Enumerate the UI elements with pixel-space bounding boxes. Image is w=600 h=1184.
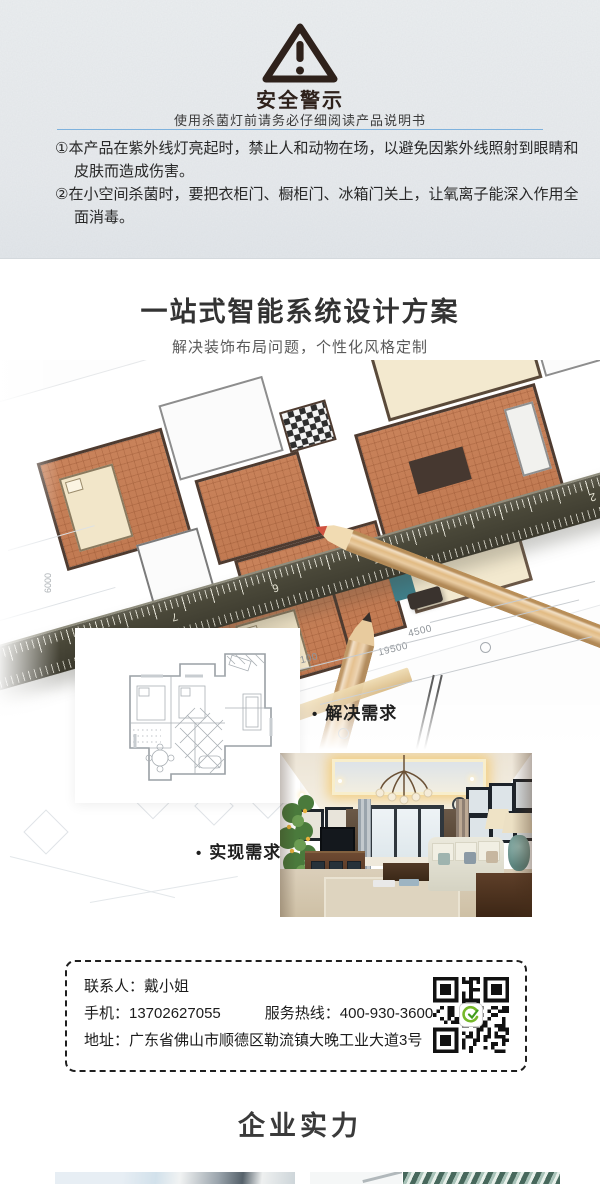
spotlight	[338, 779, 342, 783]
desk-symbol	[409, 446, 472, 494]
item-number: ①	[55, 140, 68, 157]
item-text: 在小空间杀菌时，要把衣柜门、橱柜门、冰箱门关上，让氧离子能深入作用全面消毒。	[68, 186, 578, 226]
contact-info: 联系人：戴小姐 手机：13702627055服务热线：400-930-3600 …	[84, 973, 433, 1054]
company-photo-1	[55, 1172, 295, 1184]
qr-logo-icon	[459, 1003, 483, 1027]
ottoman	[365, 884, 439, 913]
photo-detail	[362, 1172, 402, 1183]
contact-phones: 手机：13702627055服务热线：400-930-3600	[84, 1000, 433, 1027]
company-photo-2	[310, 1172, 402, 1184]
product-detail-page: 安全警示 使用杀菌灯前请务必仔细阅读产品说明书 ①本产品在紫外线灯亮起时，禁止人…	[0, 0, 600, 1184]
book	[399, 879, 419, 886]
warning-item: ①本产品在紫外线灯亮起时，禁止人和动物在场，以避免因紫外线照射到眼睛和皮肤而造成…	[55, 137, 585, 183]
warning-title: 安全警示	[0, 84, 600, 113]
contact-hotline: 服务热线：400-930-3600	[265, 1005, 433, 1022]
bullet-solve: •解决需求	[312, 699, 397, 724]
wechat-qr-code	[433, 977, 509, 1053]
design-section-title: 一站式智能系统设计方案	[0, 290, 600, 329]
company-photo-3	[403, 1172, 560, 1184]
wall-art	[466, 787, 491, 816]
interior-photo	[280, 753, 532, 917]
throw-pillow	[486, 851, 498, 863]
design-section-subtitle: 解决装饰布局问题，个性化风格定制	[0, 336, 600, 357]
faint-sketch	[23, 809, 68, 854]
window-mullion	[394, 809, 397, 857]
axis-circle	[480, 642, 491, 653]
floorplan-sketch-card	[75, 628, 300, 803]
spotlight	[470, 777, 474, 781]
contact-mobile: 手机：13702627055	[84, 1005, 221, 1022]
warning-item: ②在小空间杀菌时，要把衣柜门、橱柜门、冰箱门关上，让氧离子能深入作用全面消毒。	[55, 183, 585, 229]
bed-symbol	[59, 463, 134, 551]
item-number: ②	[55, 186, 68, 203]
pillow-symbol	[65, 478, 84, 494]
bullet-dot-icon: •	[312, 706, 318, 723]
throw-pillow	[438, 853, 450, 865]
item-text: 本产品在紫外线灯亮起时，禁止人和动物在场，以避免因紫外线照射到眼睛和皮肤而造成伤…	[68, 140, 578, 180]
bullet-dot-icon: •	[196, 845, 202, 862]
bullet-realize: •实现需求	[196, 838, 281, 863]
photo-vignette	[512, 753, 532, 917]
armchair	[346, 837, 374, 871]
safety-warning-section: 安全警示 使用杀菌灯前请务必仔细阅读产品说明书 ①本产品在紫外线灯亮起时，禁止人…	[0, 0, 600, 259]
floorplan-line-drawing	[75, 628, 300, 803]
bullet-label: 解决需求	[325, 704, 397, 723]
bullet-label: 实现需求	[209, 843, 281, 862]
company-strength-title: 企业实力	[0, 1104, 600, 1143]
contact-address: 地址：广东省佛山市顺德区勒流镇大晚工业大道3号	[84, 1027, 433, 1054]
throw-pillow	[464, 852, 476, 864]
divider-line	[57, 129, 543, 130]
contact-box: 联系人：戴小姐 手机：13702627055服务热线：400-930-3600 …	[65, 960, 527, 1072]
faint-sketch-line	[90, 876, 238, 903]
window-mullion	[418, 809, 421, 857]
book	[373, 880, 395, 887]
contact-person: 联系人：戴小姐	[84, 973, 433, 1000]
warning-list: ①本产品在紫外线灯亮起时，禁止人和动物在场，以避免因紫外线照射到眼睛和皮肤而造成…	[55, 137, 585, 229]
photo-vignette	[280, 753, 296, 917]
chandelier-icon	[372, 755, 436, 809]
warning-subtitle: 使用杀菌灯前请务必仔细阅读产品说明书	[0, 110, 600, 129]
warning-triangle-icon	[260, 22, 340, 84]
